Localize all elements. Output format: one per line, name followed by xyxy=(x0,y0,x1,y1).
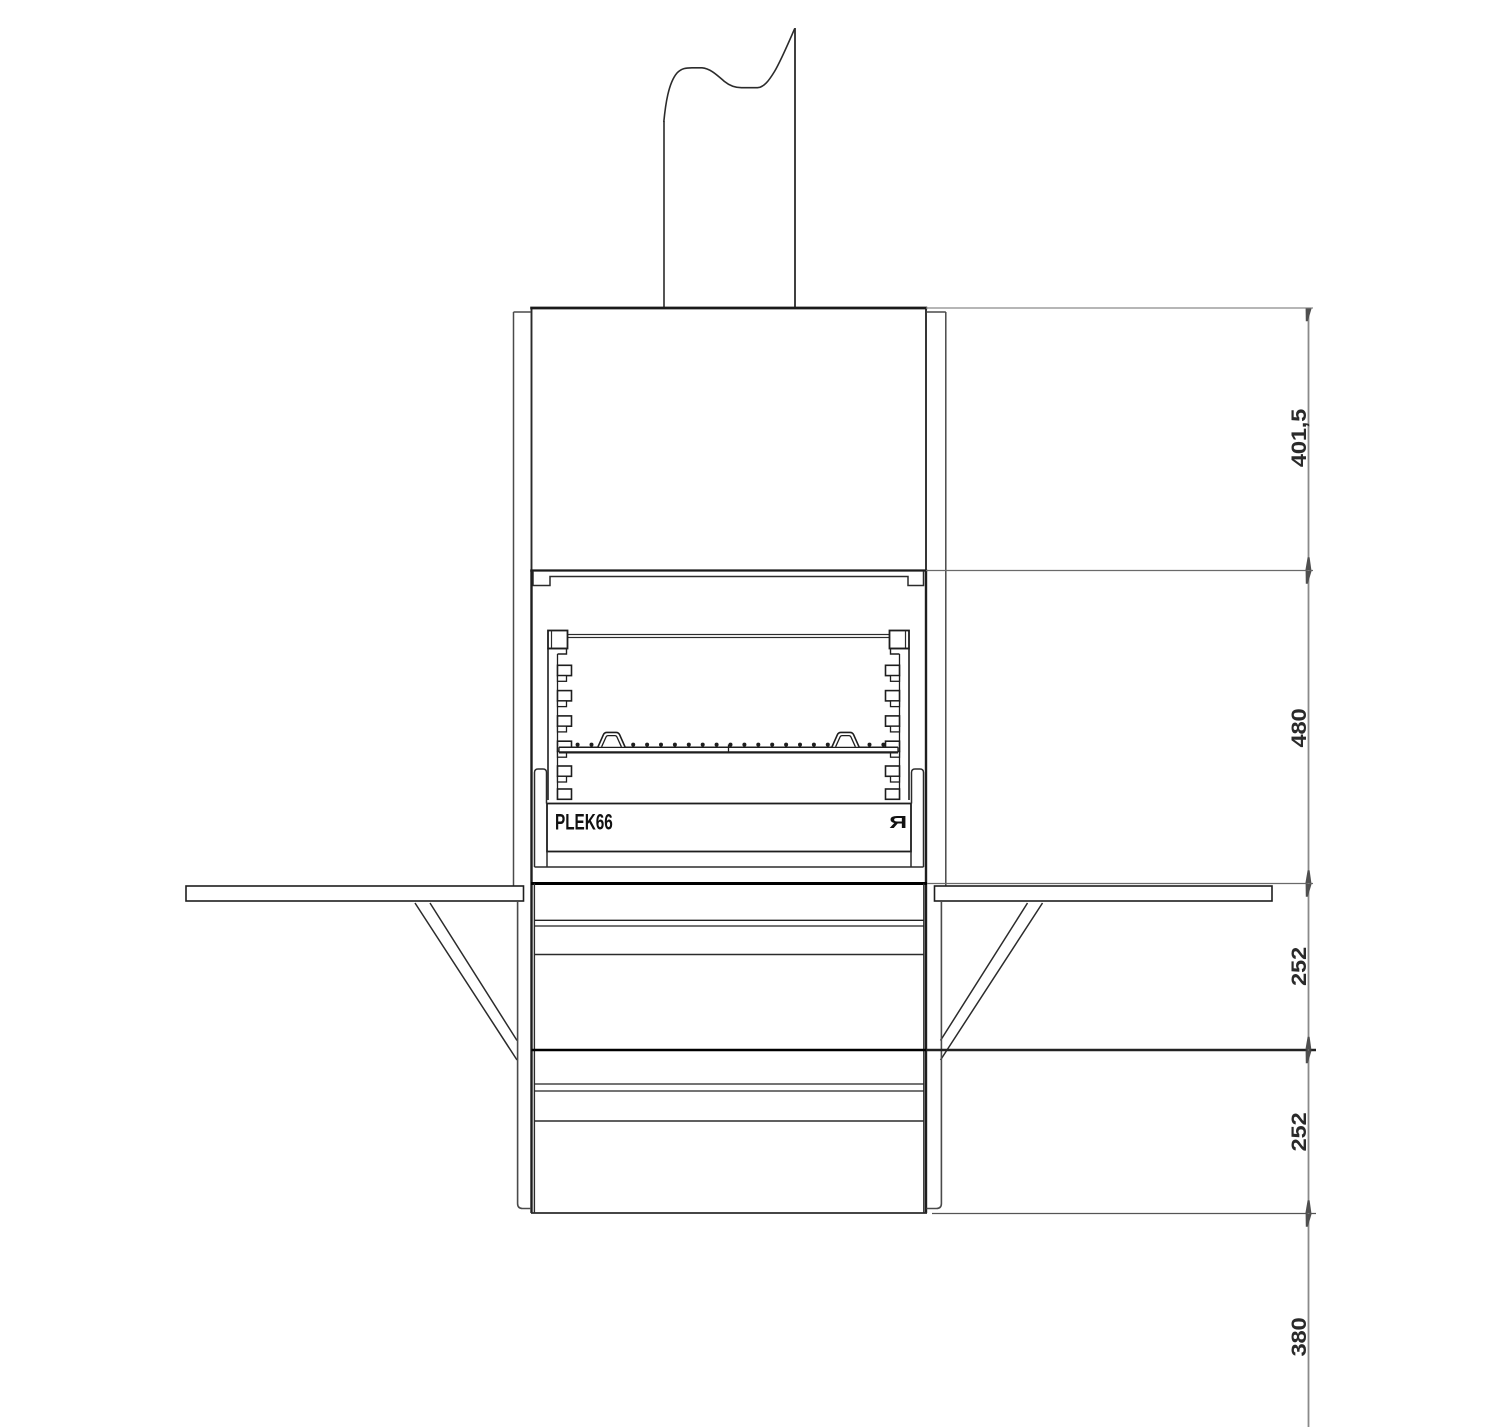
svg-text:380: 380 xyxy=(1287,1318,1310,1357)
svg-text:252: 252 xyxy=(1287,947,1310,986)
svg-text:252: 252 xyxy=(1287,1113,1310,1152)
svg-text:Я: Я xyxy=(889,811,907,832)
svg-text:480: 480 xyxy=(1287,709,1310,748)
svg-text:401,5: 401,5 xyxy=(1287,409,1310,467)
svg-text:PLEK66: PLEK66 xyxy=(555,811,613,836)
